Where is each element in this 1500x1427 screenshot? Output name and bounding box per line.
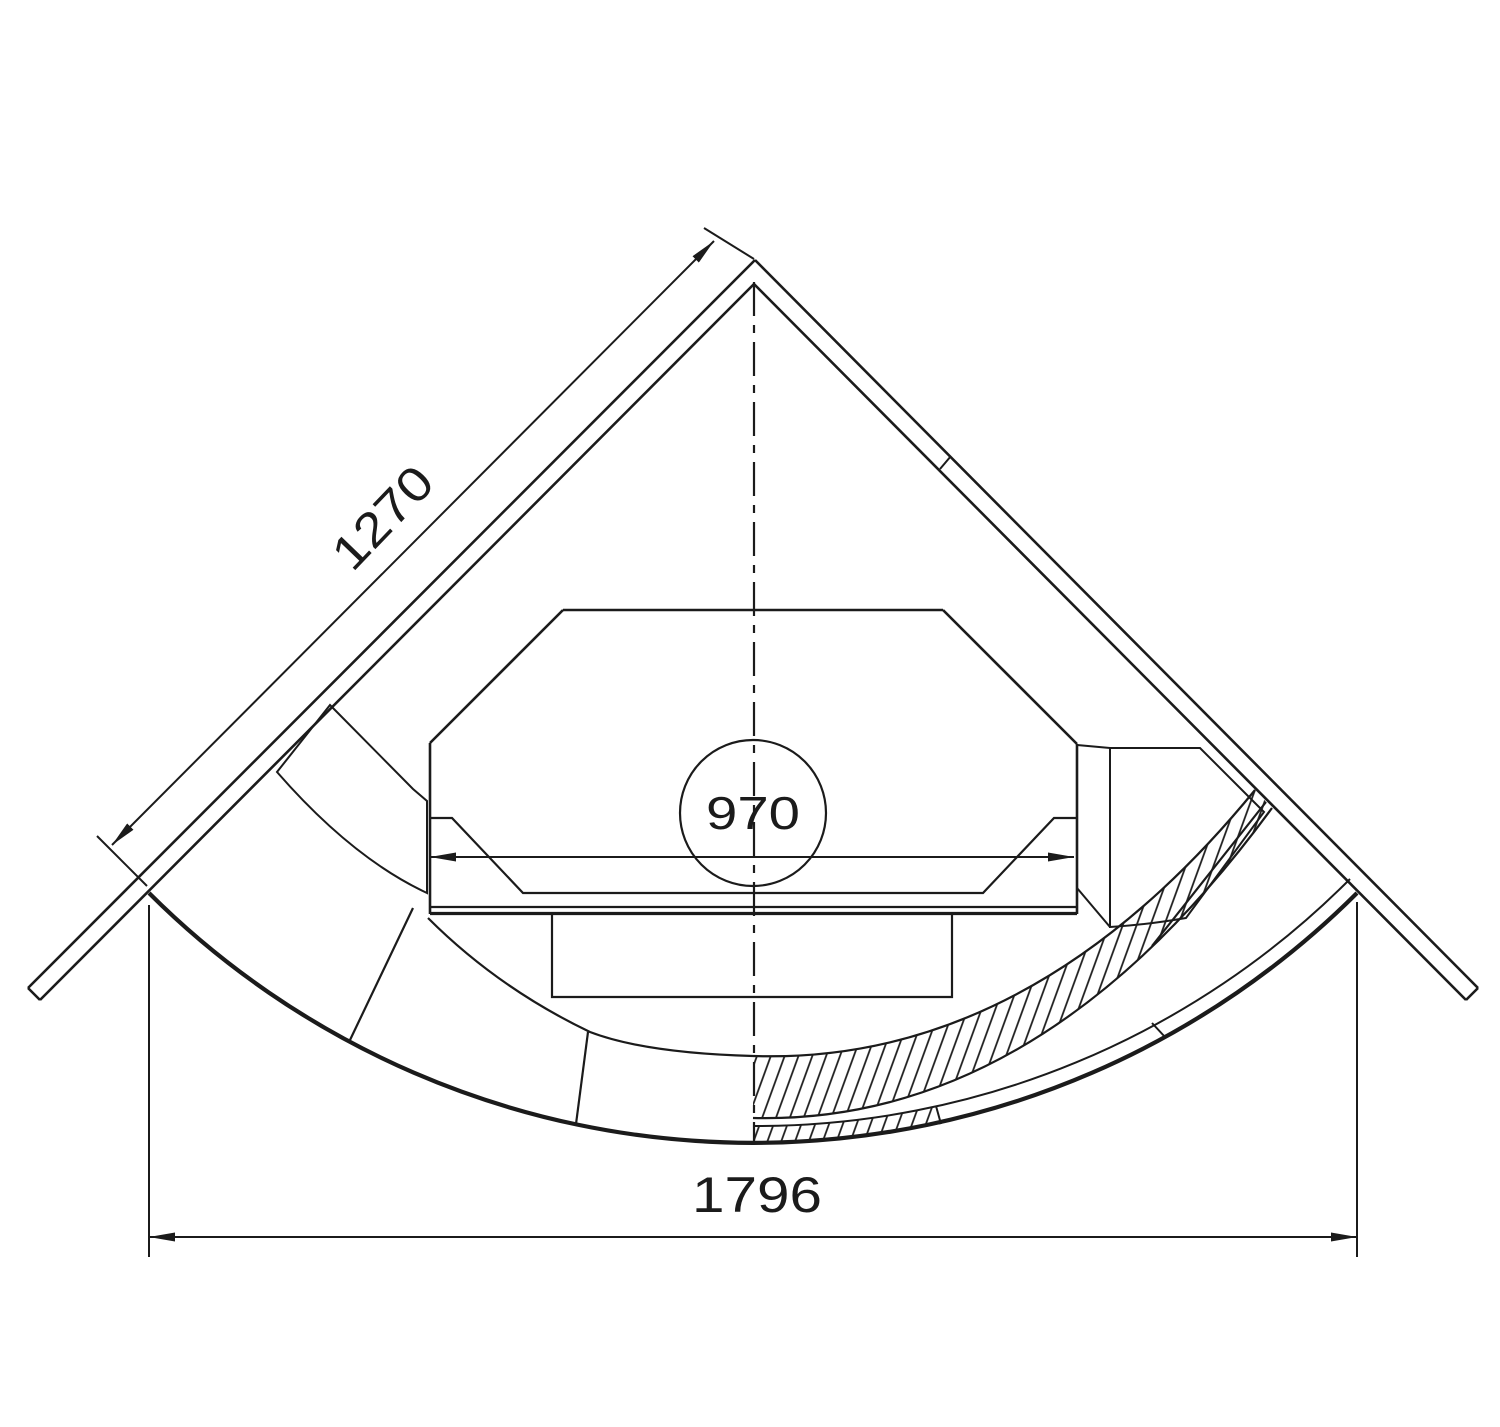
bench-inner-edge [428,918,753,1056]
left-insulation-block [277,705,427,893]
dimension-firebox-opening: 970 [430,740,1074,886]
right-wall-panel-joint [940,456,951,469]
pedestal-outline [552,914,952,998]
dimension-label-side-wall: 1270 [322,456,445,581]
technical-drawing-page: 1270 970 1796 [0,0,1500,1427]
dimension-label-firebox-opening: 970 [706,787,800,839]
extension-line-wall-bottom [97,836,147,886]
bench-divider-left [350,908,413,1040]
dimension-side-wall: 1270 [97,228,754,886]
corner-connector-top-right [1077,745,1110,748]
stove-left-chamfer [430,610,563,743]
dimension-label-front-span: 1796 [692,1167,822,1223]
bench-divider-center [576,1032,588,1124]
stove-right-chamfer [943,610,1077,744]
dimension-line-1270 [112,241,714,845]
glass-band-hatch [753,790,1272,1118]
corner-connector-bottom-right [1077,888,1110,927]
left-insulation-block-shape [277,705,427,893]
bench-end-cut-right [1152,802,1266,946]
right-wall-outer-line [755,260,1478,988]
corner-fireplace-plan-drawing: 1270 970 1796 [0,0,1500,1427]
bench-divider-right [1152,1023,1165,1037]
left-wall-end-cap [28,988,40,1000]
right-wall-end-cap [1466,988,1478,1000]
left-wall-outer-line [28,260,755,988]
